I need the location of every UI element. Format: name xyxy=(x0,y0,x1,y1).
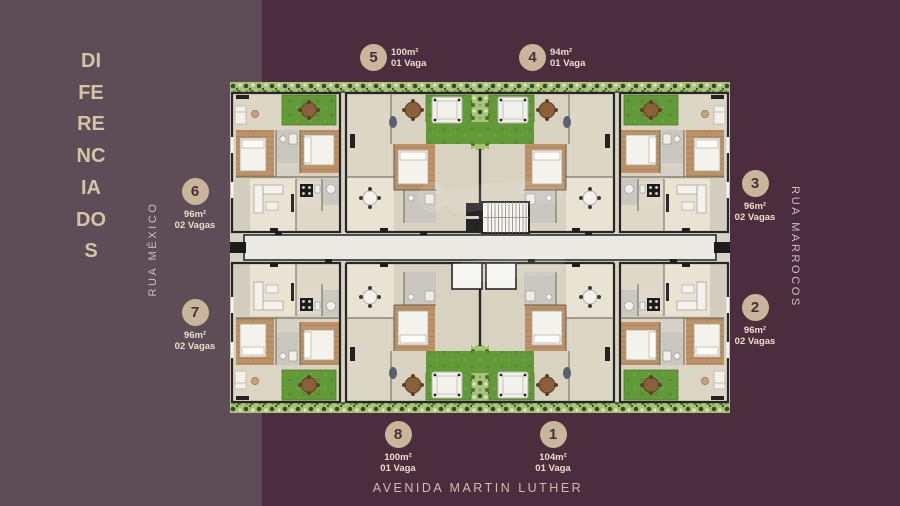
slide: DIFERENCIADOS xyxy=(0,0,900,506)
unit-4-area: 94m² xyxy=(550,47,585,58)
unit-6-parking: 02 Vagas xyxy=(155,220,235,231)
unit-3-area: 96m² xyxy=(715,201,795,212)
street-name-bottom: AVENIDA MARTIN LUTHER xyxy=(373,481,583,495)
unit-4-badge: 4 xyxy=(519,44,546,71)
unit-8-badge: 8 xyxy=(385,421,412,448)
unit-2-parking: 02 Vagas xyxy=(715,336,795,347)
unit-2-area: 96m² xyxy=(715,325,795,336)
unit-8-parking: 01 Vaga xyxy=(358,463,438,474)
unit-7-parking: 02 Vagas xyxy=(155,341,235,352)
unit-5-area: 100m² xyxy=(391,47,426,58)
unit-7-area: 96m² xyxy=(155,330,235,341)
unit-6-area: 96m² xyxy=(155,209,235,220)
unit-4-parking: 01 Vaga xyxy=(550,58,585,69)
unit-3-parking: 02 Vagas xyxy=(715,212,795,223)
unit-label-1: 1 104m² 01 Vaga xyxy=(513,421,593,474)
unit-8-area: 100m² xyxy=(358,452,438,463)
central-corridor xyxy=(230,232,730,263)
page-title: DIFERENCIADOS xyxy=(76,46,106,268)
unit-1-badge: 1 xyxy=(540,421,567,448)
unit-label-5: 5 100m² 01 Vaga xyxy=(360,44,426,71)
unit-7-badge: 7 xyxy=(182,299,209,326)
unit-label-4: 4 94m² 01 Vaga xyxy=(519,44,585,71)
unit-label-7: 7 96m² 02 Vagas xyxy=(155,299,235,352)
unit-5-parking: 01 Vaga xyxy=(391,58,426,69)
unit-label-8: 8 100m² 01 Vaga xyxy=(358,421,438,474)
unit-3-badge: 3 xyxy=(742,170,769,197)
left-background-panel xyxy=(0,0,262,506)
unit-2-badge: 2 xyxy=(742,294,769,321)
unit-5-badge: 5 xyxy=(360,44,387,71)
unit-1-area: 104m² xyxy=(513,452,593,463)
unit-1-parking: 01 Vaga xyxy=(513,463,593,474)
floor-plan xyxy=(230,82,730,413)
unit-6-badge: 6 xyxy=(182,178,209,205)
unit-label-2: 2 96m² 02 Vagas xyxy=(715,294,795,347)
unit-label-6: 6 96m² 02 Vagas xyxy=(155,178,235,231)
unit-label-3: 3 96m² 02 Vagas xyxy=(715,170,795,223)
